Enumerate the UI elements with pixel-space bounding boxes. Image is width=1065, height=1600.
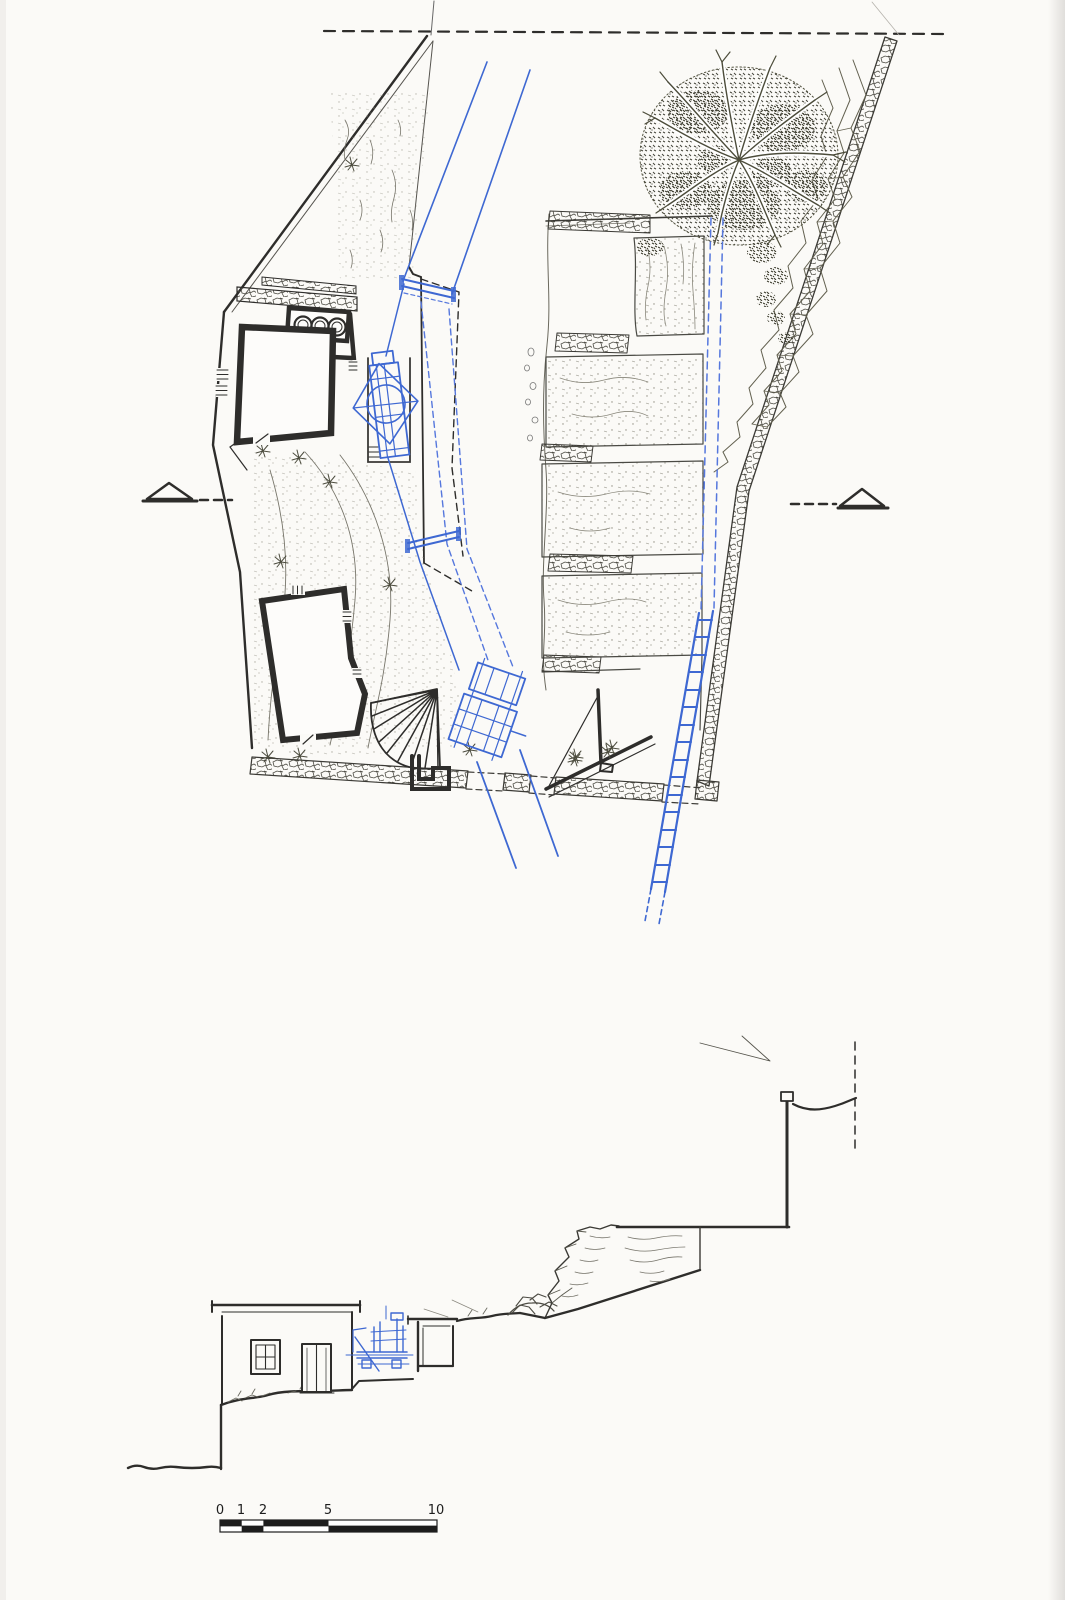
house-door <box>300 1344 334 1393</box>
paper-background <box>0 0 1065 1600</box>
house-window <box>251 1340 280 1374</box>
retaining-wall-rubble <box>548 211 650 233</box>
drawing-canvas: 0 1 2 5 10 <box>0 0 1065 1600</box>
scanned-architectural-drawing: 0 1 2 5 10 <box>0 0 1065 1600</box>
scale-label-0: 0 <box>216 1503 224 1518</box>
upper-room <box>237 327 333 442</box>
scale-label-10: 10 <box>428 1503 445 1518</box>
page-edge-shadow <box>1048 0 1065 1600</box>
scale-label-5: 5 <box>324 1503 332 1518</box>
scale-label-1: 1 <box>237 1503 245 1518</box>
page-edge-left <box>0 0 6 1600</box>
scale-bar-graphic <box>220 1520 437 1532</box>
scale-label-2: 2 <box>259 1503 267 1518</box>
